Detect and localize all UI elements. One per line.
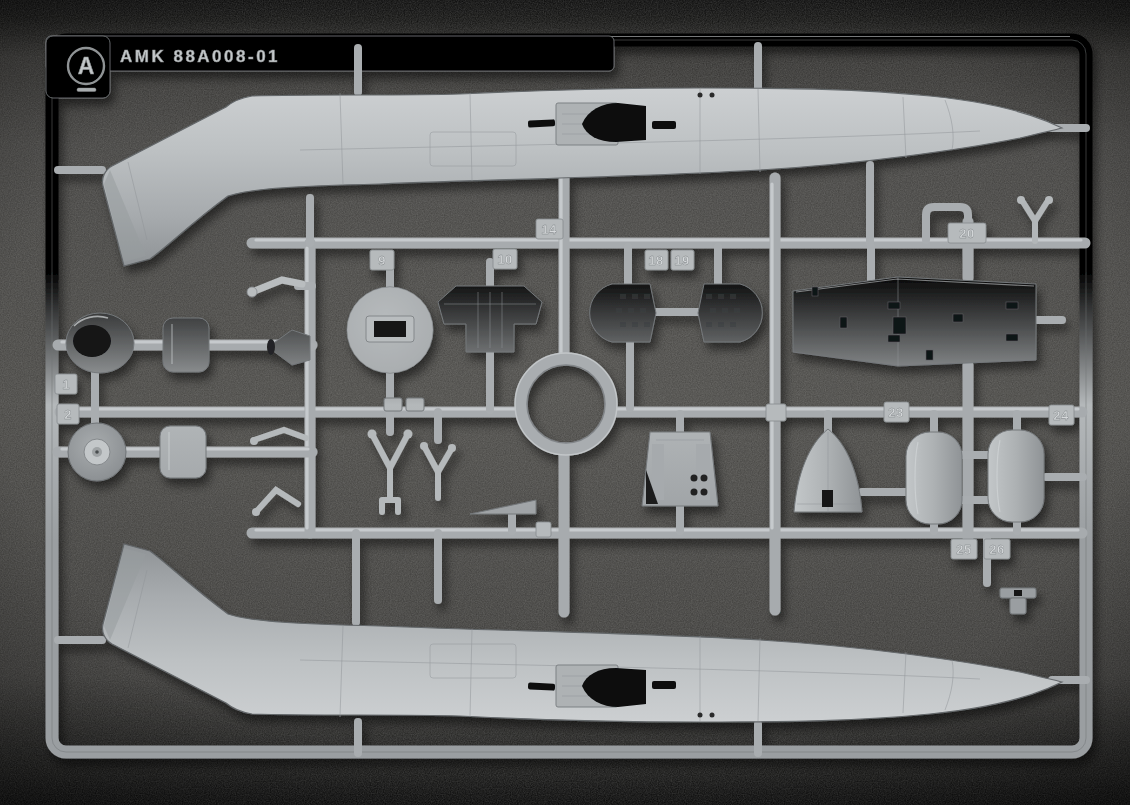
part-number-20: 20 <box>959 226 974 241</box>
seat-back-panel-part-2 <box>160 426 206 478</box>
part-number-9: 9 <box>378 253 386 268</box>
main-wheel-part <box>68 423 126 481</box>
spine-hole-2 <box>710 93 715 98</box>
mold-code-text: AMK 88A008-01 <box>120 47 280 66</box>
part-number-10: 10 <box>497 252 512 267</box>
part-number-18: 18 <box>648 253 663 268</box>
cockpit-tub-part <box>642 432 718 506</box>
part-number-26: 26 <box>989 542 1004 557</box>
part-tag-blank-1 <box>766 404 786 421</box>
intake-slot <box>528 119 555 127</box>
equipment-deck-part <box>793 277 1036 366</box>
sprue-letter-underline <box>77 88 96 92</box>
seat-cushion-part-left <box>590 284 656 342</box>
sprue-photo: A AMK 88A008-01 <box>0 0 1130 805</box>
aft-slot <box>652 121 676 129</box>
intake-ring-part <box>66 313 134 373</box>
part-number-19: 19 <box>674 253 689 268</box>
part-number-25: 25 <box>956 542 971 557</box>
part-number-23: 23 <box>888 405 903 420</box>
disc-bulkhead-part <box>347 287 433 373</box>
seat-back-panel-part-1 <box>163 318 209 372</box>
part-number-24: 24 <box>1053 408 1069 423</box>
part-tag-blank-2 <box>536 522 551 537</box>
spine-hole-1 <box>698 93 703 98</box>
part-number-2: 2 <box>64 407 72 422</box>
part-number-1: 1 <box>62 377 70 392</box>
sprue-photo-stage: A AMK 88A008-01 <box>0 0 1130 805</box>
seat-cushion-part-right <box>698 284 762 342</box>
sprue-letter: A <box>78 53 95 79</box>
part-number-14: 14 <box>541 222 557 237</box>
